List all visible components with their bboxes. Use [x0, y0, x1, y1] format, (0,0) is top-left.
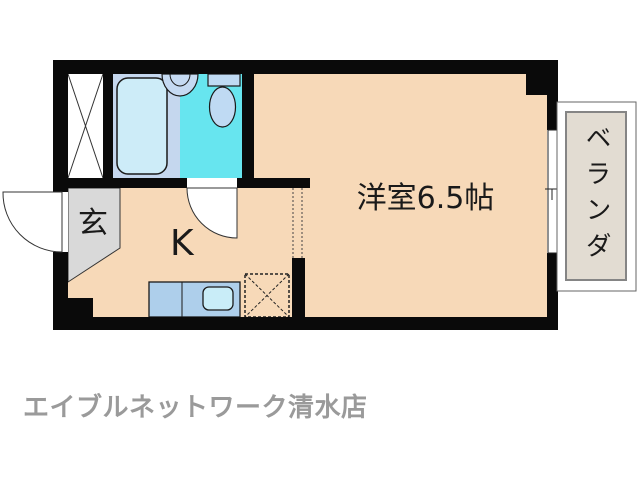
wall-left-upper	[53, 60, 68, 192]
toilet-bowl	[210, 87, 236, 127]
bathtub	[117, 78, 167, 174]
toilet-tank	[208, 74, 240, 86]
wall-bottom	[53, 317, 558, 330]
wall-right-upper	[547, 74, 558, 130]
wall-kitchen-stub	[292, 258, 305, 317]
veranda-label: ベランダ	[583, 124, 609, 268]
veranda-label-box: ベランダ	[566, 112, 626, 280]
wall-top	[53, 60, 558, 74]
entrance-label: 玄	[78, 209, 108, 239]
wall-step-bottom-left	[68, 298, 93, 317]
wall-partition-left	[53, 178, 187, 188]
main-room-label: 洋室6.5帖	[338, 184, 513, 214]
bathroom-door-opening	[187, 178, 237, 188]
kitchen-label: K	[170, 226, 194, 262]
entrance-swing-door	[3, 192, 62, 252]
agency-name-text: エイブルネットワーク清水店	[23, 387, 368, 424]
wall-pipe-space-right	[103, 74, 113, 178]
kitchen-sink	[203, 287, 233, 310]
wall-bathroom-right	[242, 74, 254, 188]
floor-plan-canvas: 玄 K 洋室6.5帖 ベランダ エイブルネットワーク清水店	[0, 0, 640, 480]
wall-partition-right	[237, 178, 310, 188]
